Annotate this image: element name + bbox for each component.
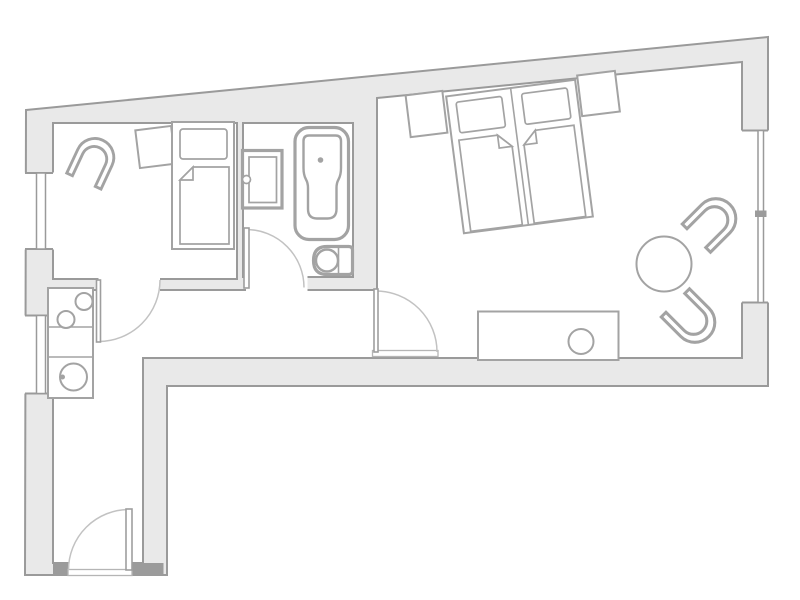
- floor-plan-svg: [0, 0, 800, 600]
- bathtub: [295, 128, 349, 240]
- sink-tap-dot: [60, 375, 65, 380]
- burner-2: [58, 311, 75, 328]
- door-leaf: [244, 228, 249, 288]
- room-bathroom: [243, 128, 353, 275]
- door-leaf: [97, 280, 101, 342]
- bed-pillow-left: [456, 96, 506, 133]
- walls: [25, 37, 768, 575]
- room-small-bedroom: [67, 122, 234, 249]
- door-leaf: [126, 509, 132, 570]
- door-threshold: [373, 351, 439, 357]
- vanity-knob: [243, 176, 251, 184]
- window-right: [741, 131, 769, 303]
- sideboard-circle: [569, 329, 594, 354]
- room-main-bedroom: [406, 71, 744, 360]
- bed-mattress-left: [459, 133, 522, 231]
- main-bedroom-door: [373, 289, 439, 357]
- bathtub-drain: [318, 157, 324, 163]
- door-jamb-left: [53, 563, 69, 576]
- small-bedroom-door: [97, 277, 161, 342]
- window-glass-icon: [37, 316, 46, 394]
- window-divider: [755, 211, 767, 218]
- nightstand-left: [406, 91, 448, 137]
- vanity-sink: [243, 151, 283, 209]
- round-table: [637, 237, 692, 292]
- tub-chair-lower: [661, 289, 723, 351]
- floor-plan-page: [0, 0, 800, 600]
- toilet-bowl: [316, 250, 338, 272]
- sideboard: [478, 312, 619, 361]
- bathtub-inner: [304, 136, 342, 219]
- kitchenette: [48, 288, 93, 398]
- double-bed: [446, 80, 593, 234]
- doorway-opening: [246, 275, 308, 293]
- armchair: [67, 132, 120, 189]
- window-left-upper: [24, 173, 54, 250]
- burner-1: [76, 293, 93, 310]
- door-threshold: [68, 570, 132, 576]
- vanity-basin: [249, 157, 277, 203]
- toilet: [314, 247, 353, 275]
- door-leaf: [374, 289, 378, 352]
- bed-pillow-right: [521, 88, 571, 125]
- door-swing-arc: [69, 510, 130, 571]
- doorway-opening: [99, 277, 161, 293]
- nightstand-right: [577, 71, 620, 116]
- side-table: [135, 126, 175, 168]
- single-bed: [172, 122, 234, 249]
- bed-pillow: [180, 129, 227, 159]
- window-glass-icon: [37, 173, 46, 249]
- door-swing-arc: [376, 291, 437, 352]
- door-jamb-right: [132, 563, 164, 576]
- tub-chair-upper: [682, 190, 744, 252]
- sideboard-top: [478, 312, 619, 361]
- bathroom-door: [244, 228, 308, 292]
